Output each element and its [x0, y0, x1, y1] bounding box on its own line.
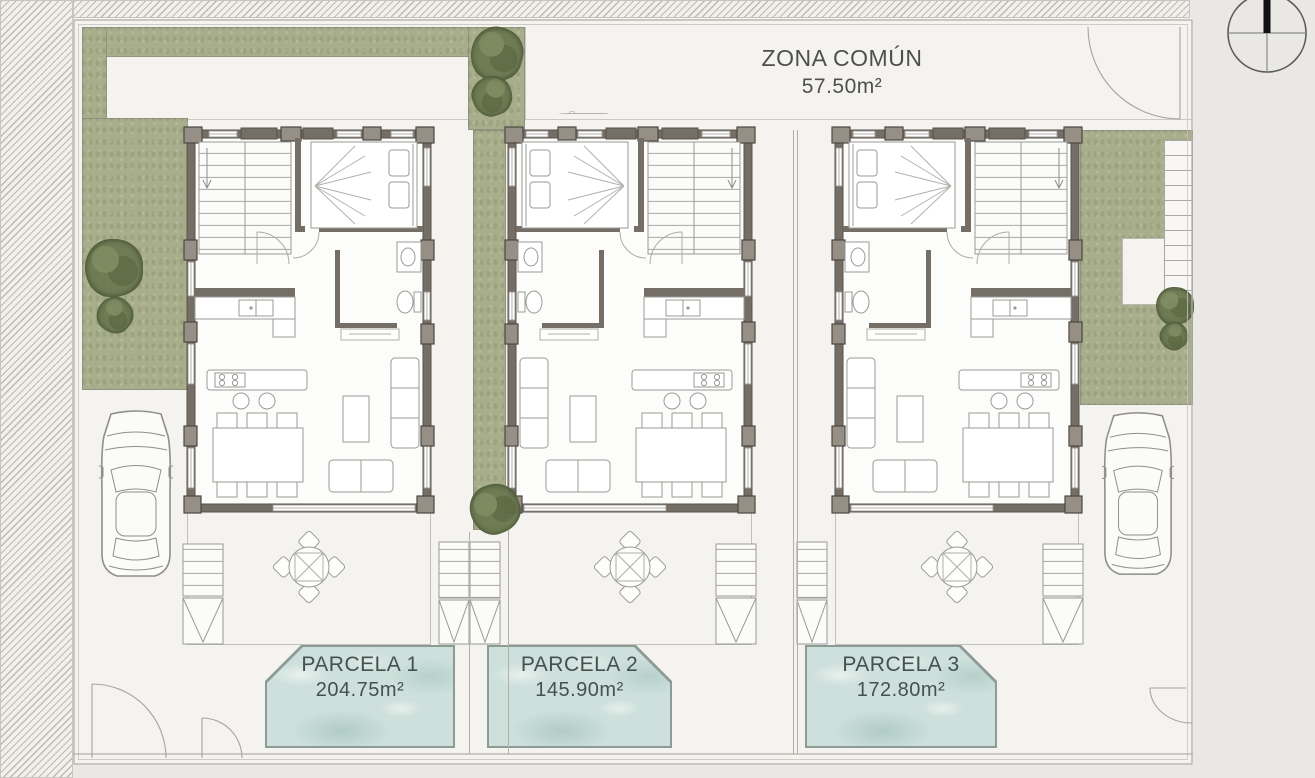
- zona-comun-name: ZONA COMÚN: [762, 44, 923, 73]
- parcel-name: PARCELA 3: [842, 652, 959, 678]
- parcel-name: PARCELA 2: [521, 652, 638, 678]
- parcel-area: 145.90m²: [535, 678, 624, 703]
- parcel-area: 172.80m²: [857, 678, 946, 703]
- pool-label-1: PARCELA 1 204.75m²: [265, 645, 455, 748]
- compass-icon: [1224, 0, 1310, 76]
- pool-parcela-1: PARCELA 1 204.75m²: [265, 645, 455, 748]
- site-plan-canvas: PARCELA 1 204.75m² PARCELA 2 145.90m² PA…: [0, 0, 1315, 778]
- parcel-name: PARCELA 1: [301, 652, 418, 678]
- gate-arc-icon: [1088, 27, 1180, 119]
- pool-parcela-3: PARCELA 3 172.80m²: [805, 645, 997, 748]
- pool-label-3: PARCELA 3 172.80m²: [805, 645, 997, 748]
- gate-arc-icon: [202, 718, 242, 758]
- parcel-area: 204.75m²: [316, 678, 405, 703]
- north-needle: [1264, 0, 1271, 33]
- gate-arc-icon: [92, 684, 166, 758]
- zona-comun-label: ZONA COMÚN 57.50m²: [722, 44, 962, 100]
- zona-comun-area: 57.50m²: [802, 73, 883, 100]
- gate-arc-icon: [1150, 688, 1192, 723]
- parcel-divider-2-3: [794, 130, 798, 754]
- pool-parcela-2: PARCELA 2 145.90m²: [487, 645, 672, 748]
- pool-label-2: PARCELA 2 145.90m²: [487, 645, 672, 748]
